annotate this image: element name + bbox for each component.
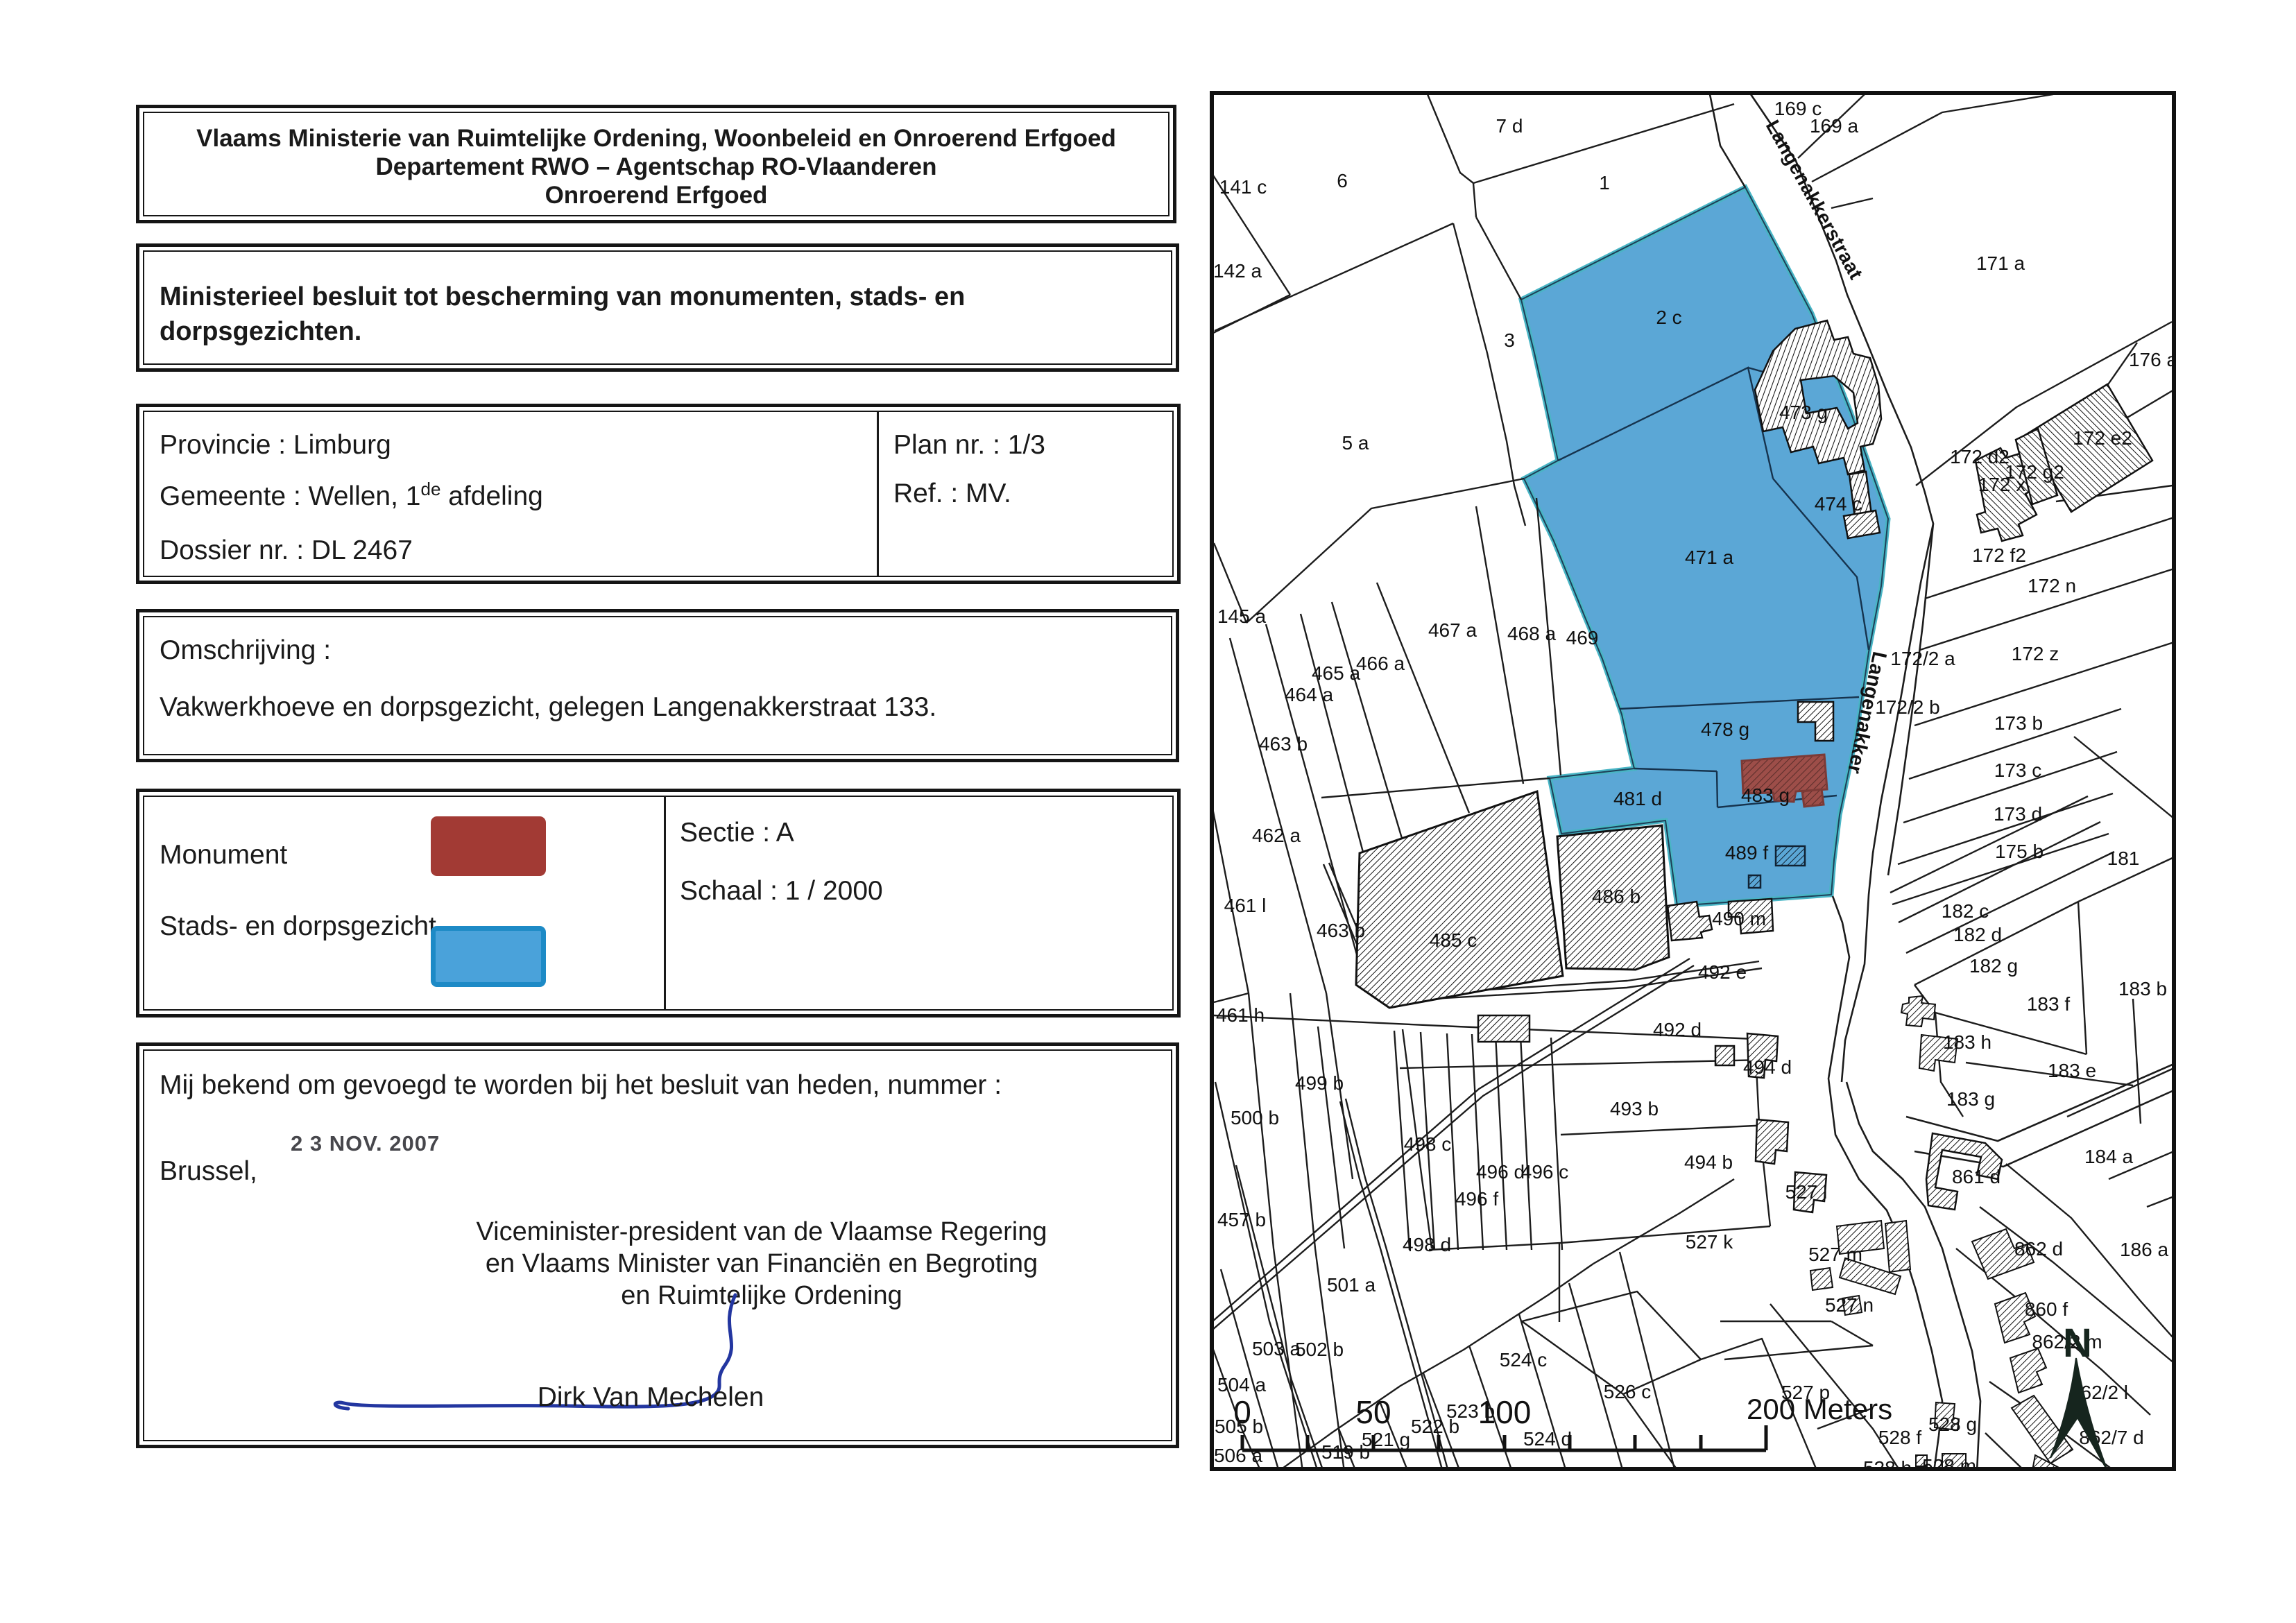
svg-text:524 c: 524 c — [1500, 1349, 1548, 1371]
svg-text:172 e2: 172 e2 — [2073, 427, 2132, 449]
svg-text:498 c: 498 c — [1404, 1133, 1452, 1155]
svg-text:184 a: 184 a — [2084, 1146, 2133, 1167]
svg-text:463 b: 463 b — [1259, 733, 1308, 755]
svg-text:50: 50 — [1355, 1394, 1391, 1430]
svg-text:464 a: 464 a — [1285, 684, 1333, 705]
svg-text:524 d: 524 d — [1523, 1428, 1572, 1450]
svg-text:503 a: 503 a — [1252, 1338, 1301, 1359]
svg-text:465 a: 465 a — [1312, 662, 1360, 684]
svg-text:200 Meters: 200 Meters — [1747, 1393, 1892, 1425]
svg-text:181: 181 — [2107, 848, 2140, 869]
svg-text:176 a: 176 a — [2129, 349, 2177, 370]
svg-text:171 a: 171 a — [1976, 252, 2025, 274]
svg-text:528 f: 528 f — [1878, 1427, 1921, 1448]
svg-text:528 g: 528 g — [1928, 1414, 1977, 1435]
svg-text:175 b: 175 b — [1995, 841, 2044, 862]
svg-text:183 e: 183 e — [2048, 1060, 2096, 1081]
svg-text:172 n: 172 n — [2028, 575, 2076, 596]
svg-text:481 d: 481 d — [1613, 788, 1662, 809]
svg-text:501 a: 501 a — [1327, 1274, 1376, 1296]
svg-text:499 b: 499 b — [1295, 1072, 1344, 1094]
svg-text:169 a: 169 a — [1810, 115, 1858, 137]
svg-text:469: 469 — [1566, 627, 1599, 649]
svg-text:498 d: 498 d — [1403, 1234, 1451, 1255]
svg-text:494 b: 494 b — [1684, 1151, 1733, 1173]
svg-text:473 g: 473 g — [1779, 402, 1828, 423]
svg-text:457 b: 457 b — [1217, 1209, 1266, 1230]
svg-text:486 b: 486 b — [1592, 886, 1640, 907]
svg-text:182 d: 182 d — [1953, 924, 2002, 945]
svg-text:0: 0 — [1233, 1394, 1251, 1430]
svg-text:461 l: 461 l — [1224, 895, 1267, 916]
svg-text:496 c: 496 c — [1521, 1161, 1569, 1183]
svg-text:527 n: 527 n — [1825, 1294, 1874, 1316]
svg-text:496 d: 496 d — [1476, 1161, 1525, 1183]
svg-text:862 d: 862 d — [2014, 1238, 2063, 1260]
svg-text:861 d: 861 d — [1952, 1166, 2001, 1187]
svg-text:172 f2: 172 f2 — [1972, 544, 2026, 566]
svg-text:182 c: 182 c — [1942, 900, 1989, 922]
svg-text:502 b: 502 b — [1295, 1339, 1344, 1360]
svg-text:490 m: 490 m — [1712, 908, 1766, 929]
svg-text:492 e: 492 e — [1698, 961, 1747, 983]
svg-text:462 a: 462 a — [1252, 825, 1301, 846]
svg-text:183 b: 183 b — [2118, 978, 2167, 999]
svg-text:2 c: 2 c — [1656, 307, 1681, 328]
svg-text:182 g: 182 g — [1969, 955, 2018, 977]
svg-text:492 d: 492 d — [1653, 1019, 1702, 1040]
svg-text:461 h: 461 h — [1216, 1004, 1265, 1026]
svg-text:468 a: 468 a — [1507, 623, 1556, 644]
svg-text:172/2 b: 172/2 b — [1875, 696, 1939, 718]
svg-text:173 c: 173 c — [1994, 759, 2042, 781]
svg-text:526 c: 526 c — [1604, 1381, 1652, 1402]
svg-text:471 a: 471 a — [1685, 547, 1733, 568]
svg-text:521 g: 521 g — [1362, 1429, 1410, 1450]
svg-text:506 a: 506 a — [1214, 1445, 1262, 1466]
svg-text:860 f: 860 f — [2025, 1298, 2068, 1320]
svg-text:173 d: 173 d — [1994, 803, 2042, 825]
svg-text:6: 6 — [1337, 170, 1348, 191]
svg-text:N: N — [2063, 1321, 2092, 1366]
svg-text:183 h: 183 h — [1943, 1031, 1991, 1053]
svg-text:463 b: 463 b — [1317, 920, 1365, 941]
svg-text:172/2 a: 172/2 a — [1890, 648, 1955, 669]
svg-text:528 m: 528 m — [1922, 1455, 1976, 1477]
svg-text:494 d: 494 d — [1743, 1056, 1792, 1078]
svg-text:141 c: 141 c — [1219, 176, 1267, 198]
svg-text:7 d: 7 d — [1496, 115, 1523, 137]
svg-text:504 a: 504 a — [1217, 1374, 1266, 1396]
svg-text:172 g2: 172 g2 — [2005, 461, 2064, 483]
svg-text:474 c: 474 c — [1815, 493, 1862, 515]
svg-text:3: 3 — [1504, 329, 1515, 351]
svg-text:527 k: 527 k — [1686, 1231, 1733, 1253]
svg-text:485 c: 485 c — [1430, 929, 1477, 951]
svg-text:500 b: 500 b — [1231, 1107, 1279, 1128]
svg-text:5 a: 5 a — [1342, 432, 1369, 454]
svg-text:142 a: 142 a — [1213, 260, 1262, 282]
svg-text:483 g: 483 g — [1741, 784, 1790, 806]
svg-text:478 g: 478 g — [1701, 719, 1749, 740]
svg-text:172 z: 172 z — [2012, 643, 2059, 664]
svg-text:183 f: 183 f — [2027, 993, 2070, 1015]
svg-text:100: 100 — [1478, 1394, 1532, 1430]
svg-text:145 a: 145 a — [1217, 606, 1266, 627]
svg-text:1: 1 — [1599, 172, 1610, 194]
svg-text:527 m: 527 m — [1808, 1244, 1862, 1265]
svg-text:173 b: 173 b — [1994, 712, 2043, 734]
svg-text:467 a: 467 a — [1428, 619, 1477, 641]
svg-text:186 a: 186 a — [2120, 1239, 2168, 1260]
svg-text:496 f: 496 f — [1455, 1188, 1498, 1210]
svg-text:489 f: 489 f — [1725, 842, 1768, 864]
svg-text:493 b: 493 b — [1610, 1098, 1659, 1119]
svg-text:183 g: 183 g — [1946, 1088, 1995, 1110]
svg-text:172 d2: 172 d2 — [1950, 446, 2010, 467]
svg-text:466 a: 466 a — [1356, 653, 1405, 674]
svg-text:527 l: 527 l — [1785, 1181, 1828, 1203]
